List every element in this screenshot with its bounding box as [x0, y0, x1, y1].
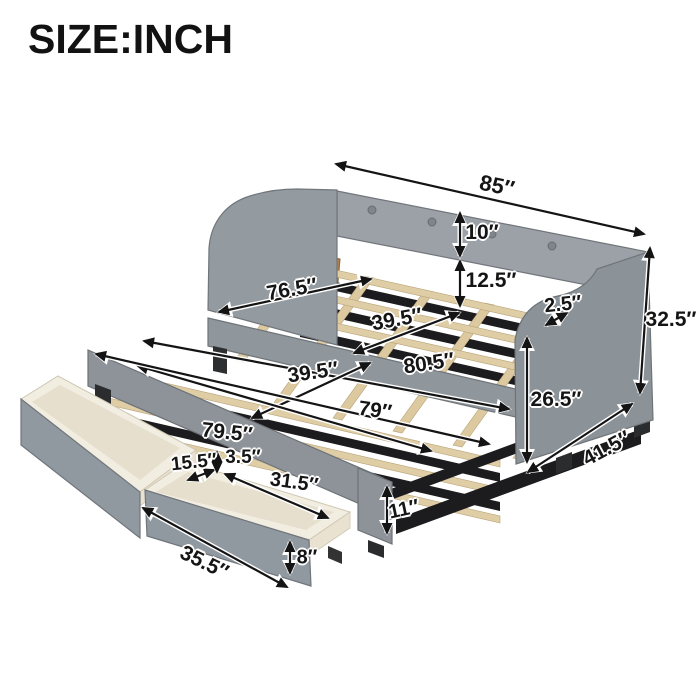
dim-label-drawer-rim-gap: 3.5″ — [225, 447, 261, 469]
upper-bed-front-leg — [213, 346, 227, 374]
left-arm — [208, 189, 337, 345]
dim-label-back-to-slat: 12.5″ — [466, 269, 517, 293]
dim-label-trundle-frame-length: 79.5″ — [200, 418, 253, 447]
trundle-corner-foot — [368, 540, 384, 558]
page-title: SIZE:INCH — [28, 16, 233, 63]
daybed-diagram-canvas — [0, 0, 700, 700]
dim-label-upper-bed-length: 79″ — [357, 397, 393, 425]
product-dimension-diagram: SIZE:INCH 85″ 10″ 12.5″ 2.5″ 32.5″ 26.5″… — [0, 0, 700, 700]
dim-label-drawer-height: 8″ — [297, 547, 318, 570]
dim-label-back-height: 10″ — [465, 221, 498, 245]
dim-label-arm-top-thickness: 2.5″ — [543, 292, 583, 319]
dim-label-side-height: 26.5″ — [531, 388, 582, 412]
dim-label-overall-height: 32.5″ — [646, 308, 697, 332]
